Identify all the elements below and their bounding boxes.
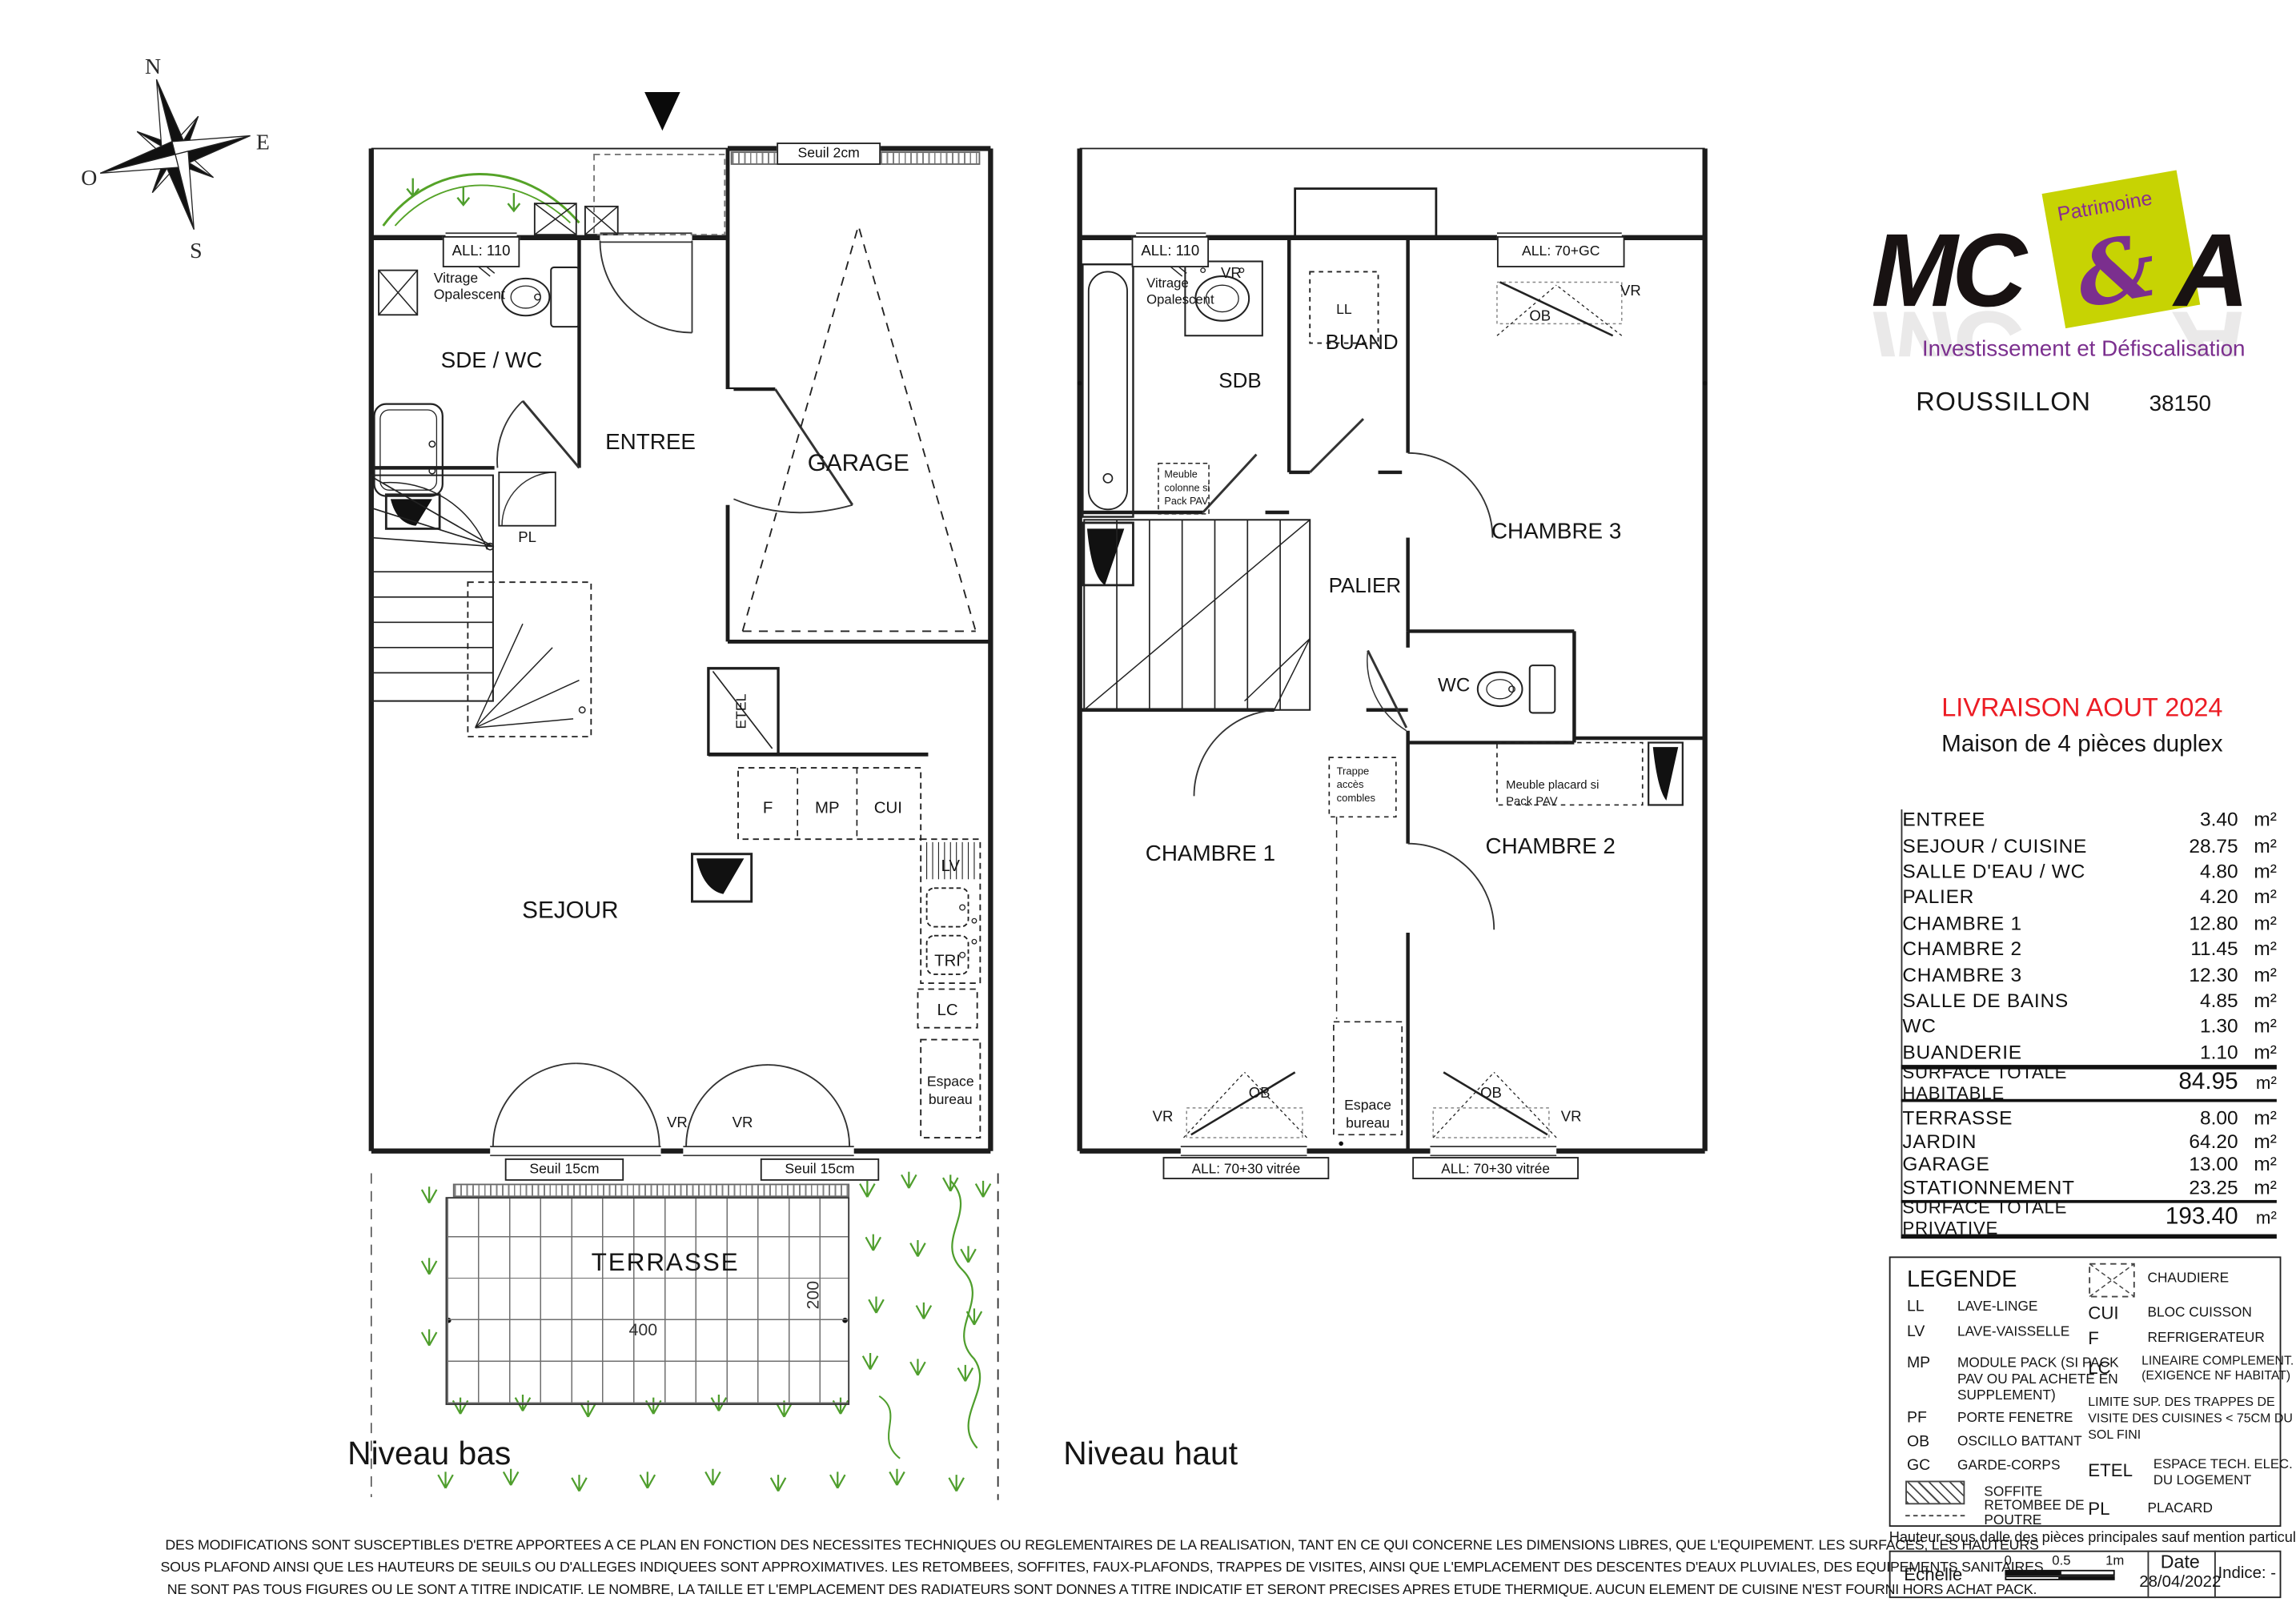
postal-code-label: 38150 [2149,393,2211,416]
total-privative-row: SURFACE TOTALE PRIVATIVE 193.40 m² [1902,1203,2276,1233]
compass-south-label: S [190,241,202,263]
legend-desc-pl: PLACARD [2147,1502,2212,1516]
scale-tick-1m: 1m [2105,1554,2124,1568]
area-unit: m² [2238,937,2277,960]
legend-desc-etel-1: ESPACE TECH. ELEC. [2154,1458,2293,1471]
tag-vr-top: VR [1620,285,1641,300]
legend-abbr-pf: PF [1907,1411,1927,1426]
table-row: CHAMBRE 312.30m² [1902,962,2276,987]
room-label-garage: GARAGE [808,453,909,477]
area-label: CHAMBRE 1 [1902,912,2163,934]
legend-desc-lv: LAVE-VAISSELLE [1957,1325,2069,1339]
area-label: JARDIN [1902,1130,2163,1152]
tag-vr-low-2: VR [733,1117,753,1132]
plan-high-fixtures [1078,239,1708,1146]
table-row: CHAMBRE 112.80m² [1902,909,2276,935]
placard-line1: Meuble placard si [1506,780,1599,792]
scale-tick-05: 0.5 [2052,1554,2070,1568]
legend-abbr-lc: LC [2088,1359,2110,1376]
legend-desc-chaudiere: CHAUDIERE [2147,1272,2229,1286]
vitrage-label-line1: Vitrage [434,272,479,287]
legend-abbr-pl: PL [2088,1500,2109,1518]
area-label: CHAMBRE 3 [1902,963,2163,986]
tag-pl: PL [518,532,536,547]
legend-desc-ob: OSCILLO BATTANT [1957,1435,2082,1449]
area-label: WC [1902,1015,2163,1038]
vitrage-high-line1: Vitrage [1146,277,1189,291]
disclaimer-line-2: SOUS PLAFOND AINSI QUE LES HAUTEURS DE S… [161,1561,2044,1576]
logo-tagline: Investissement et Défiscalisation [1922,338,2246,360]
colonne-line3: Pack PAV [1164,499,1208,509]
legend-abbr-ob: OB [1907,1435,1929,1450]
area-unit: m² [2238,1072,2277,1093]
retombee-swatch [1905,1515,1965,1516]
legend-desc-mp-3: SUPPLEMENT) [1957,1389,2056,1403]
scale-bar-segment [2005,1576,2060,1580]
room-label-buand: BUAND [1326,331,1399,352]
room-label-chambre1: CHAMBRE 1 [1146,843,1275,865]
disclaimer-line-3: NE SONT PAS TOUS FIGURES OU LE SONT A TI… [167,1584,2037,1598]
legend-desc-lc-2: (EXIGENCE NF HABITAT) [2141,1369,2290,1382]
area-label: SALLE D'EAU / WC [1902,860,2163,882]
date-label: Date [2161,1553,2200,1572]
plan-low-doors [493,241,853,1147]
window-tag-7030-2: ALL: 70+30 vitrée [1412,1157,1579,1179]
colonne-line2: colonne si [1164,485,1210,496]
tag-vr-left: VR [1153,1111,1174,1126]
area-value: 64.20 [2164,1130,2238,1152]
total-habitable-row: SURFACE TOTALE HABITABLE 84.95 m² [1902,1068,2276,1098]
compass-west-label: O [81,169,97,191]
vitrage-high-line2: Opalescent [1146,293,1214,307]
mca-logo: Patrimoine & MC A MC A [1869,160,2296,356]
area-unit: m² [2238,834,2277,857]
legend-abbr-cui: CUI [2088,1304,2118,1322]
tag-mp: MP [815,801,840,817]
tag-vr-low-1: VR [667,1117,688,1132]
seuil-2cm-tag: Seuil 2cm [777,143,881,165]
scale-bar-segment [2060,1570,2115,1576]
window-tag-all110-high: ALL: 110 [1132,236,1209,267]
legend-abbr-ll: LL [1907,1299,1925,1315]
indice-label: Indice: - [2218,1566,2276,1582]
legend-desc-retombee-1: RETOMBEE DE [1984,1499,2084,1512]
table-row: SALLE DE BAINS4.85m² [1902,987,2276,1013]
room-label-chambre3: CHAMBRE 3 [1491,520,1621,543]
floor-plan-sheet: ALL: 110 Vitrage Opalescent Seuil 2cm SD… [0,0,2296,1622]
table-row: BUANDERIE1.10m² [1902,1039,2276,1065]
legend-abbr-etel: ETEL [2088,1461,2133,1479]
espace-bureau-low-1: Espace [927,1076,974,1090]
areas-table: ENTREE3.40m² SEJOUR / CUISINE28.75m² SAL… [1902,806,2276,1065]
date-value: 28/04/2022 [2139,1575,2221,1591]
tag-vr-right: VR [1561,1111,1582,1126]
area-label: BUANDERIE [1902,1041,2163,1063]
area-label: TERRASSE [1902,1107,2163,1130]
area-label: PALIER [1902,885,2163,908]
legend-desc-gc: GARDE-CORPS [1957,1459,2060,1472]
area-value: 12.30 [2164,963,2238,986]
tag-lc: LC [937,1003,958,1019]
terrace-tiles [446,1197,850,1405]
compass-north-label: N [145,57,161,79]
terrace-dim-400: 400 [628,1323,657,1340]
tag-f: F [763,801,773,817]
legend-desc-ll: LAVE-LINGE [1957,1300,2037,1314]
area-unit: m² [2238,1015,2277,1038]
area-value: 28.75 [2164,834,2238,857]
terrace-label: TERRASSE [592,1250,740,1275]
legend-limite-3: SOL FINI [2088,1428,2141,1441]
table-row: SEJOUR / CUISINE28.75m² [1902,833,2276,858]
legend-desc-retombee-2: POUTRE [1984,1514,2041,1528]
legend-desc-f: REFRIGERATEUR [2147,1331,2264,1345]
tag-tri: TRI [934,954,961,970]
room-label-sde-wc: SDE / WC [441,350,543,372]
rule [1901,1099,2277,1102]
area-label: CHAMBRE 2 [1902,937,2163,960]
compass-rose-icon [100,79,250,229]
legend-title: LEGENDE [1907,1269,2017,1292]
legend-abbr-mp: MP [1907,1355,1930,1371]
tag-lv: LV [941,859,960,875]
tag-vr-window: VR [1221,267,1242,283]
table-row: STATIONNEMENT23.25m² [1902,1175,2276,1198]
room-label-sejour: SEJOUR [522,900,618,924]
tag-cui: CUI [874,801,902,817]
legend-desc-cui: BLOC CUISSON [2147,1306,2251,1319]
city-label: ROUSSILLON [1916,390,2091,416]
area-unit: m² [2238,1176,2277,1198]
espace-bureau-high-1: Espace [1344,1099,1391,1114]
area-value: 13.00 [2164,1153,2238,1175]
area-unit: m² [2238,989,2277,1011]
table-row: WC1.30m² [1902,1013,2276,1038]
level-title-high: Niveau haut [1063,1438,1238,1471]
area-value: 11.45 [2164,937,2238,960]
seuil-15-tag-2: Seuil 15cm [761,1158,879,1181]
entry-pointer-icon [644,92,680,130]
rule [1901,1235,2277,1239]
compass-east-label: E [256,133,270,155]
placard-line2: Pack PAV [1506,796,1558,808]
tag-ob-right: OB [1480,1087,1502,1102]
area-label: SEJOUR / CUISINE [1902,834,2163,857]
terrace-edge-band [453,1184,849,1198]
area-label: ENTREE [1902,809,2163,831]
total-habitable-value: 84.95 [2164,1070,2238,1096]
total-privative-value: 193.40 [2164,1204,2238,1231]
table-row: PALIER4.20m² [1902,884,2276,909]
area-label: GARAGE [1902,1153,2163,1175]
legend-abbr-gc: GC [1907,1458,1930,1473]
total-habitable-label: SURFACE TOTALE HABITABLE [1902,1062,2163,1103]
legend-limite-1: LIMITE SUP. DES TRAPPES DE [2088,1395,2274,1408]
area-value: 1.10 [2164,1041,2238,1063]
area-unit: m² [2238,860,2277,882]
table-row: CHAMBRE 211.45m² [1902,936,2276,962]
plan-high-openings [1136,229,1622,1160]
total-privative-label: SURFACE TOTALE PRIVATIVE [1902,1197,2163,1239]
tag-ob-top: OB [1529,311,1551,326]
area-value: 4.20 [2164,885,2238,908]
area-label: STATIONNEMENT [1902,1176,2163,1198]
area-unit: m² [2238,1041,2277,1063]
window-tag-7030-1: ALL: 70+30 vitrée [1163,1157,1330,1179]
trappe-line1: Trappe [1337,767,1370,777]
program-label: Maison de 4 pièces duplex [1941,733,2222,757]
area-label: SALLE DE BAINS [1902,989,2163,1011]
espace-bureau-low-2: bureau [929,1094,973,1108]
trappe-line2: accès [1337,781,1364,791]
level-title-low: Niveau bas [347,1438,511,1471]
vitrage-label-line2: Opalescent [434,288,505,303]
legend-limite-2: VISITE DES CUISINES < 75CM DU [2088,1412,2293,1425]
area-unit: m² [2238,1153,2277,1175]
soffite-swatch [1905,1481,1965,1505]
disclaimer-line-1: DES MODIFICATIONS SONT SUSCEPTIBLES D'ET… [165,1539,2038,1553]
legend-desc-etel-2: DU LOGEMENT [2154,1474,2251,1488]
delivery-label: LIVRAISON AOUT 2024 [1941,696,2222,721]
area-unit: m² [2238,963,2277,986]
window-tag-all110-low: ALL: 110 [443,236,520,267]
area-unit: m² [2238,809,2277,831]
area-unit: m² [2238,1107,2277,1130]
legend-abbr-lv: LV [1907,1324,1925,1339]
area-value: 8.00 [2164,1107,2238,1130]
chaudiere-swatch [2088,1263,2135,1299]
trappe-line3: combles [1337,794,1375,805]
room-label-chambre2: CHAMBRE 2 [1486,835,1616,857]
area-value: 23.25 [2164,1176,2238,1198]
colonne-line1: Meuble [1164,472,1197,482]
garden-low-top [383,175,580,226]
table-row: SALLE D'EAU / WC4.80m² [1902,858,2276,884]
room-label-entree: ENTREE [605,432,696,454]
area-value: 4.80 [2164,860,2238,882]
area-unit: m² [2238,1207,2277,1228]
tag-ob-left: OB [1249,1087,1270,1102]
room-label-wc: WC [1438,675,1470,694]
area-unit: m² [2238,1130,2277,1152]
table-row: JARDIN64.20m² [1902,1130,2276,1153]
scale-bar-segment [2060,1576,2115,1580]
room-label-palier: PALIER [1329,575,1401,596]
terrace-dim-200: 200 [807,1281,824,1310]
area-value: 1.30 [2164,1015,2238,1038]
seuil-15-tag-1: Seuil 15cm [505,1158,624,1181]
room-label-sdb: SDB [1218,370,1261,391]
legend-desc-pf: PORTE FENETRE [1957,1411,2073,1425]
area-value: 4.85 [2164,989,2238,1011]
espace-bureau-high-2: bureau [1346,1118,1390,1132]
tag-etel: ETEL [736,694,750,729]
area-value: 3.40 [2164,809,2238,831]
legend-desc-lc-1: LINEAIRE COMPLEMENT. [2141,1354,2294,1367]
area-value: 12.80 [2164,912,2238,934]
table-row: GARAGE13.00m² [1902,1153,2276,1176]
table-row: ENTREE3.40m² [1902,806,2276,832]
exterior-table: TERRASSE8.00m² JARDIN64.20m² GARAGE13.00… [1902,1106,2276,1198]
area-unit: m² [2238,912,2277,934]
legend-abbr-f: F [2088,1329,2099,1347]
tag-ll: LL [1336,303,1352,318]
table-row: TERRASSE8.00m² [1902,1106,2276,1130]
area-unit: m² [2238,885,2277,908]
window-tag-all70gc: ALL: 70+GC [1497,236,1625,267]
